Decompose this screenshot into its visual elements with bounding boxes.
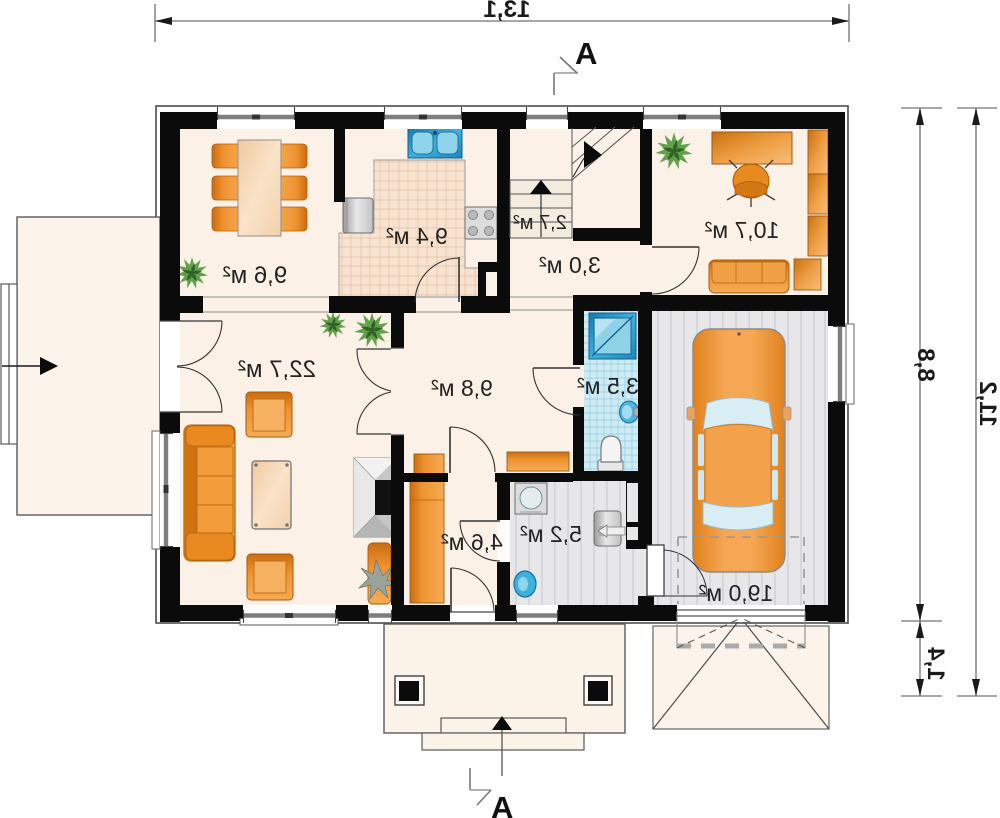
svg-text:10,7 м²: 10,7 м² <box>704 217 779 243</box>
svg-text:9,4 м²: 9,4 м² <box>386 223 448 249</box>
svg-text:3,5 м²: 3,5 м² <box>577 373 639 399</box>
svg-text:19,0 м²: 19,0 м² <box>698 580 773 606</box>
svg-text:4,6 м²: 4,6 м² <box>441 529 503 555</box>
svg-text:2,7 м²: 2,7 м² <box>513 212 567 234</box>
svg-text:3,0 м²: 3,0 м² <box>539 252 601 278</box>
svg-text:9,6 м²: 9,6 м² <box>223 262 288 289</box>
svg-text:13,1: 13,1 <box>484 0 531 23</box>
svg-text:5,2 м²: 5,2 м² <box>520 521 582 547</box>
svg-text:22,7 м²: 22,7 м² <box>238 356 316 383</box>
svg-text:1,4: 1,4 <box>922 647 949 681</box>
svg-text:11,2: 11,2 <box>974 381 1000 426</box>
svg-text:8,8: 8,8 <box>912 348 939 381</box>
svg-text:9,8 м²: 9,8 м² <box>431 375 493 401</box>
svg-text:A: A <box>491 790 513 818</box>
svg-text:A: A <box>575 36 597 71</box>
